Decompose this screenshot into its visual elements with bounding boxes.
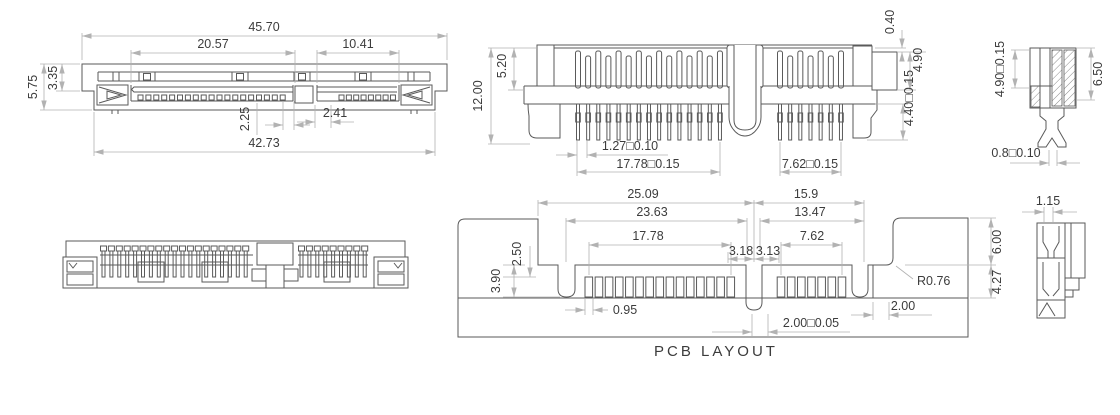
pin-element bbox=[697, 277, 705, 297]
topview-signal-pin-heads bbox=[299, 246, 368, 251]
pin-element bbox=[346, 95, 351, 100]
pin-element bbox=[193, 95, 198, 100]
side-view-small: 1.15 bbox=[1022, 194, 1085, 318]
pin-element bbox=[162, 95, 167, 100]
dim-tab-height: 6.00 bbox=[990, 230, 1004, 254]
pin-element bbox=[314, 246, 320, 251]
dim-section-overall-height: 6.50 bbox=[1091, 62, 1105, 86]
pin-element bbox=[707, 56, 712, 88]
pin-element bbox=[376, 95, 381, 100]
pin-element bbox=[362, 246, 368, 251]
pin-element bbox=[636, 277, 644, 297]
pin-element bbox=[272, 95, 277, 100]
pin-element bbox=[656, 277, 664, 297]
pin-element bbox=[606, 56, 611, 88]
dim-key-right: 3.13 bbox=[756, 244, 780, 258]
topview-center-key bbox=[252, 243, 298, 288]
pin-element bbox=[299, 246, 305, 251]
pin-element bbox=[233, 95, 238, 100]
pin-element bbox=[717, 51, 722, 88]
rear-power-tail-marks bbox=[576, 113, 723, 122]
pin-element bbox=[686, 277, 694, 297]
pcb-signal-pads bbox=[777, 277, 846, 297]
dim-latch-step: 0.40 bbox=[883, 10, 897, 34]
technical-drawing-canvas: 45.70 20.57 10.41 5.75 3.35 2.25 2.41 42… bbox=[0, 0, 1120, 415]
pin-element bbox=[368, 95, 373, 100]
dim-power-pad-span: 17.78 bbox=[632, 229, 663, 243]
topview-power-pin-heads bbox=[101, 246, 249, 251]
pin-element bbox=[808, 277, 816, 297]
topview-right-cap bbox=[374, 257, 408, 288]
left-latch bbox=[97, 85, 128, 105]
dim-pad-pitch-tol: 2.00□0.05 bbox=[783, 316, 839, 330]
pin-element bbox=[595, 277, 603, 297]
pin-element bbox=[838, 51, 843, 88]
pcb-outline bbox=[458, 218, 968, 337]
center-tower-slot bbox=[734, 45, 756, 130]
pin-element bbox=[154, 95, 159, 100]
pin-element bbox=[124, 246, 130, 251]
dim-signal-key-offset: 2.41 bbox=[323, 106, 347, 120]
pin-element bbox=[636, 51, 641, 88]
dim-corner-radius: R0.76 bbox=[917, 274, 950, 288]
dim-lower-width: 42.73 bbox=[248, 136, 279, 150]
pin-element bbox=[322, 246, 328, 251]
dim-signal-pad-span: 7.62 bbox=[800, 229, 824, 243]
dim-pin-pitch: 1.27□0.10 bbox=[602, 139, 658, 153]
pin-element bbox=[586, 56, 591, 88]
dim-power-span: 17.78□0.15 bbox=[616, 157, 679, 171]
rear-view-geometry bbox=[524, 45, 897, 140]
pin-element bbox=[667, 56, 672, 88]
pin-element bbox=[257, 95, 262, 100]
rear-power-contacts-long bbox=[576, 51, 723, 88]
pin-element bbox=[605, 277, 613, 297]
dim-signal-center-span: 15.9 bbox=[794, 187, 818, 201]
pin-element bbox=[828, 56, 833, 88]
pin-element bbox=[354, 95, 359, 100]
pin-element bbox=[170, 95, 175, 100]
dim-tab-lower-height: 4.27 bbox=[990, 270, 1004, 294]
pin-element bbox=[717, 277, 725, 297]
pin-element bbox=[243, 246, 249, 251]
pin-element bbox=[148, 246, 154, 251]
front-signal-contacts bbox=[339, 95, 395, 100]
dim-housing-height: 5.20 bbox=[495, 54, 509, 78]
pin-element bbox=[306, 246, 312, 251]
pin-element bbox=[677, 51, 682, 88]
dim-signal-segment: 10.41 bbox=[342, 37, 373, 51]
pin-element bbox=[657, 51, 662, 88]
center-key-block bbox=[295, 86, 313, 103]
right-latch-tab bbox=[872, 52, 897, 90]
pin-element bbox=[383, 95, 388, 100]
pin-element bbox=[838, 277, 846, 297]
section-view-labels: 4.90□0.15 6.50 0.8□0.10 bbox=[991, 41, 1105, 160]
pin-element bbox=[338, 246, 344, 251]
pin-element bbox=[217, 95, 222, 100]
strip-keys bbox=[139, 72, 371, 81]
rear-view-labels: 12.00 5.20 0.40 4.90 4.40□0.15 1.27□0.10… bbox=[471, 10, 925, 171]
dim-key-left: 3.18 bbox=[729, 244, 753, 258]
right-foot bbox=[853, 104, 877, 138]
pcb-dimensions bbox=[503, 200, 996, 336]
dim-overall-height: 12.00 bbox=[471, 80, 485, 111]
dim-pad-length: 2.50 bbox=[510, 242, 524, 266]
dim-signal-span: 7.62□0.15 bbox=[782, 157, 838, 171]
dim-pad-width: 0.95 bbox=[613, 303, 637, 317]
pin-element bbox=[798, 277, 806, 297]
pin-element bbox=[596, 51, 601, 88]
pin-element bbox=[330, 246, 336, 251]
dim-edge-clearance: 2.00 bbox=[891, 299, 915, 313]
side-view-geometry bbox=[1037, 223, 1085, 318]
pin-element bbox=[211, 246, 217, 251]
dim-pad-offset: 3.90 bbox=[489, 269, 503, 293]
pin-element bbox=[138, 95, 143, 100]
pin-element bbox=[203, 246, 209, 251]
pin-element bbox=[390, 95, 395, 100]
pin-element bbox=[180, 246, 186, 251]
side-view-dimensions bbox=[1022, 207, 1077, 222]
pin-element bbox=[697, 51, 702, 88]
front-power-contacts bbox=[138, 95, 285, 100]
dim-overall-width: 45.70 bbox=[248, 20, 279, 34]
front-view: 45.70 20.57 10.41 5.75 3.35 2.25 2.41 42… bbox=[26, 20, 447, 156]
pin-element bbox=[707, 277, 715, 297]
pin-element bbox=[187, 246, 193, 251]
dim-upper-height: 3.35 bbox=[46, 66, 60, 90]
pin-element bbox=[576, 51, 581, 88]
dim-contact-height: 4.90□0.15 bbox=[993, 41, 1007, 97]
pin-element bbox=[818, 277, 826, 297]
pcb-layout-title: PCB LAYOUT bbox=[654, 343, 778, 360]
pin-element bbox=[195, 246, 201, 251]
pin-element bbox=[132, 246, 138, 251]
pin-element bbox=[227, 246, 233, 251]
section-view: 4.90□0.15 6.50 0.8□0.10 bbox=[991, 41, 1105, 166]
right-end-post bbox=[853, 46, 872, 86]
pin-element bbox=[116, 246, 122, 251]
topview-left-cap bbox=[63, 257, 97, 288]
pin-element bbox=[676, 277, 684, 297]
pin-element bbox=[140, 246, 146, 251]
pcb-power-pads bbox=[585, 277, 735, 297]
pin-element bbox=[172, 246, 178, 251]
pin-element bbox=[339, 95, 344, 100]
pin-element bbox=[185, 95, 190, 100]
pin-element bbox=[798, 51, 803, 88]
dim-latch-height: 4.90 bbox=[911, 48, 925, 72]
pin-element bbox=[687, 56, 692, 88]
pin-element bbox=[616, 51, 621, 88]
front-view-geometry bbox=[82, 64, 447, 114]
pin-element bbox=[727, 277, 735, 297]
dim-total-height: 5.75 bbox=[26, 75, 40, 99]
pin-element bbox=[146, 95, 151, 100]
dim-pin-thickness: 1.15 bbox=[1036, 194, 1060, 208]
pin-element bbox=[818, 51, 823, 88]
pin-element bbox=[615, 277, 623, 297]
pin-element bbox=[585, 277, 593, 297]
dim-power-segment: 20.57 bbox=[197, 37, 228, 51]
pin-element bbox=[264, 95, 269, 100]
front-view-labels: 45.70 20.57 10.41 5.75 3.35 2.25 2.41 42… bbox=[26, 20, 374, 150]
left-end-post bbox=[537, 45, 554, 86]
pin-element bbox=[646, 277, 654, 297]
pin-element bbox=[777, 277, 785, 297]
dim-power-key-offset: 2.25 bbox=[238, 107, 252, 131]
left-foot bbox=[528, 104, 560, 138]
pin-element bbox=[235, 246, 241, 251]
rear-signal-tail-marks bbox=[778, 113, 844, 122]
pin-element bbox=[788, 56, 793, 88]
rear-power-contacts-short bbox=[586, 56, 713, 88]
top-view bbox=[63, 241, 408, 288]
pin-element bbox=[164, 246, 170, 251]
dim-power-center-span: 25.09 bbox=[627, 187, 658, 201]
pin-element bbox=[346, 246, 352, 251]
rear-view: 12.00 5.20 0.40 4.90 4.40□0.15 1.27□0.10… bbox=[471, 10, 926, 176]
pin-element bbox=[241, 95, 246, 100]
pin-element bbox=[354, 246, 360, 251]
pin-element bbox=[808, 56, 813, 88]
pin-element bbox=[219, 246, 225, 251]
pin-element bbox=[787, 277, 795, 297]
pin-element bbox=[249, 95, 254, 100]
pin-element bbox=[108, 246, 114, 251]
pin-element bbox=[626, 277, 634, 297]
pin-element bbox=[646, 56, 651, 88]
pin-element bbox=[361, 95, 366, 100]
pin-element bbox=[626, 56, 631, 88]
pin-element bbox=[101, 246, 107, 251]
pin-element bbox=[178, 95, 183, 100]
dim-tail-length: 4.40□0.15 bbox=[902, 70, 916, 126]
pin-element bbox=[225, 95, 230, 100]
engineering-drawing-page: 45.70 20.57 10.41 5.75 3.35 2.25 2.41 42… bbox=[0, 0, 1120, 415]
pin-element bbox=[209, 95, 214, 100]
section-view-geometry bbox=[1030, 48, 1076, 147]
pcb-layout-view: 25.09 15.9 23.63 13.47 17.78 7.62 3.18 3… bbox=[458, 187, 1004, 360]
pin-element bbox=[778, 51, 783, 88]
rear-signal-contacts-short bbox=[788, 56, 834, 88]
pin-element bbox=[828, 277, 836, 297]
pin-element bbox=[201, 95, 206, 100]
dim-signal-outline-span: 13.47 bbox=[794, 205, 825, 219]
right-latch bbox=[401, 85, 432, 105]
pin-element bbox=[156, 246, 162, 251]
pin-element bbox=[280, 95, 285, 100]
section-foot bbox=[1038, 108, 1066, 147]
dim-tail-width: 0.8□0.10 bbox=[991, 146, 1040, 160]
pin-element bbox=[666, 277, 674, 297]
dim-power-outline-span: 23.63 bbox=[636, 205, 667, 219]
